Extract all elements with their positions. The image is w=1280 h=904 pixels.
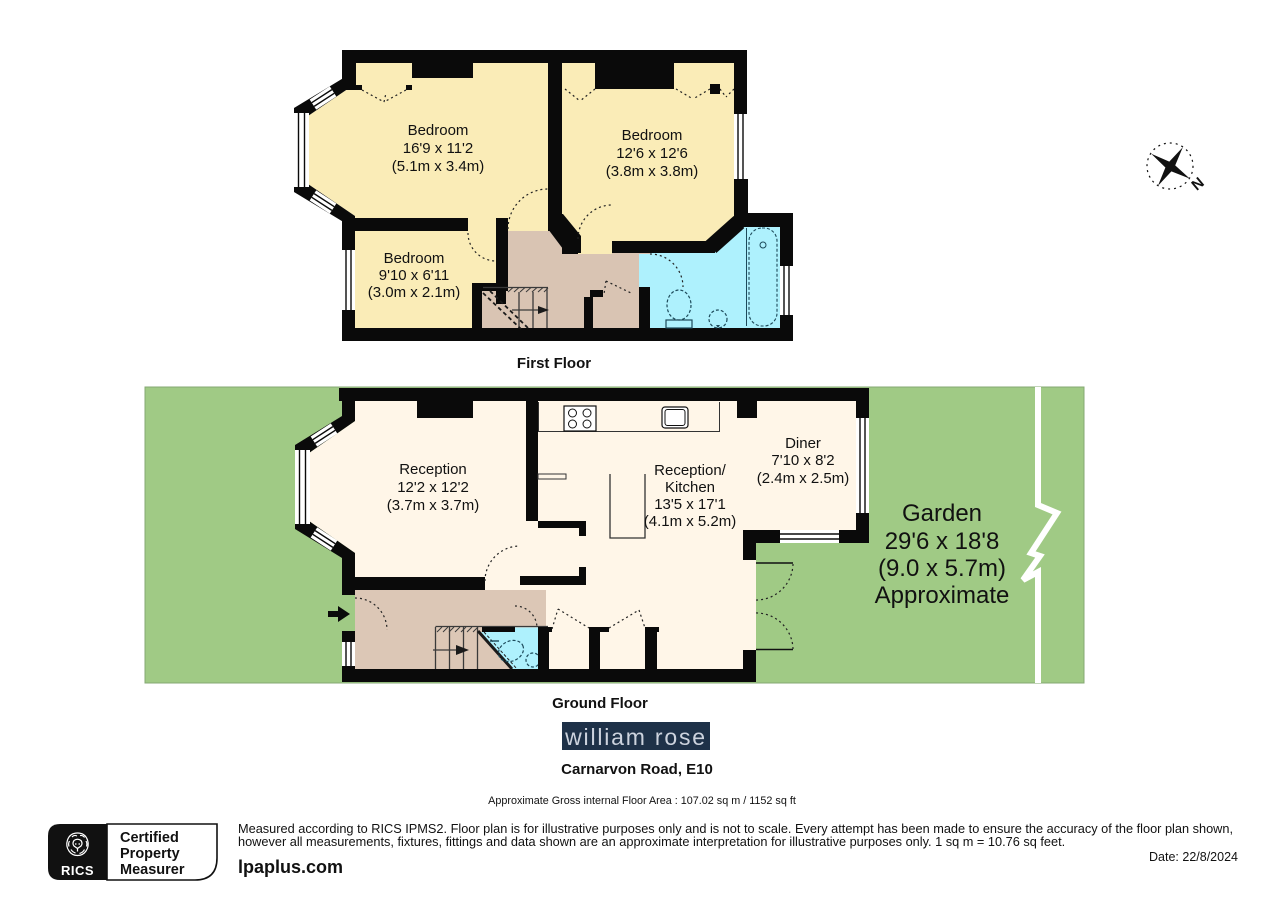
svg-text:13'5 x 17'1: 13'5 x 17'1 xyxy=(654,496,726,513)
svg-text:Date: 22/8/2024: Date: 22/8/2024 xyxy=(1149,850,1238,864)
svg-text:29'6 x 18'8: 29'6 x 18'8 xyxy=(885,528,1000,555)
svg-text:9'10 x 6'11: 9'10 x 6'11 xyxy=(379,267,450,284)
svg-text:(5.1m x 3.4m): (5.1m x 3.4m) xyxy=(392,158,485,175)
svg-text:7'10 x 8'2: 7'10 x 8'2 xyxy=(771,452,834,469)
svg-text:lpaplus.com: lpaplus.com xyxy=(238,857,343,877)
svg-text:william rose: william rose xyxy=(564,724,707,750)
svg-text:(3.7m x 3.7m): (3.7m x 3.7m) xyxy=(387,497,480,514)
svg-text:(9.0 x 5.7m): (9.0 x 5.7m) xyxy=(878,555,1006,582)
svg-text:12'2 x 12'2: 12'2 x 12'2 xyxy=(397,479,469,496)
svg-text:Certified: Certified xyxy=(120,830,179,846)
svg-text:RICS: RICS xyxy=(61,863,94,878)
svg-text:Reception/: Reception/ xyxy=(654,462,727,479)
svg-text:First Floor: First Floor xyxy=(517,355,591,372)
svg-text:Property: Property xyxy=(120,846,180,862)
svg-text:Approximate: Approximate xyxy=(875,582,1010,609)
svg-text:(4.1m x 5.2m): (4.1m x 5.2m) xyxy=(644,513,737,530)
svg-text:Ground Floor: Ground Floor xyxy=(552,695,648,712)
svg-text:Bedroom: Bedroom xyxy=(622,127,683,144)
svg-text:Measurer: Measurer xyxy=(120,862,185,878)
svg-text:Kitchen: Kitchen xyxy=(665,479,715,496)
svg-text:(3.8m x 3.8m): (3.8m x 3.8m) xyxy=(606,163,699,180)
svg-text:(2.4m x 2.5m): (2.4m x 2.5m) xyxy=(757,470,850,487)
svg-text:(3.0m x 2.1m): (3.0m x 2.1m) xyxy=(368,284,461,301)
svg-text:Reception: Reception xyxy=(399,461,467,478)
svg-text:however all measurements, fixt: however all measurements, fixtures, fitt… xyxy=(238,834,1065,849)
svg-text:Bedroom: Bedroom xyxy=(384,250,445,267)
svg-text:12'6 x 12'6: 12'6 x 12'6 xyxy=(616,145,688,162)
svg-text:16'9 x 11'2: 16'9 x 11'2 xyxy=(403,140,474,157)
svg-text:Carnarvon Road, E10: Carnarvon Road, E10 xyxy=(561,761,713,778)
svg-text:Approximate Gross internal Flo: Approximate Gross internal Floor Area : … xyxy=(488,795,796,807)
svg-text:Diner: Diner xyxy=(785,435,821,452)
svg-text:Bedroom: Bedroom xyxy=(408,122,469,139)
svg-text:Garden: Garden xyxy=(902,500,982,527)
